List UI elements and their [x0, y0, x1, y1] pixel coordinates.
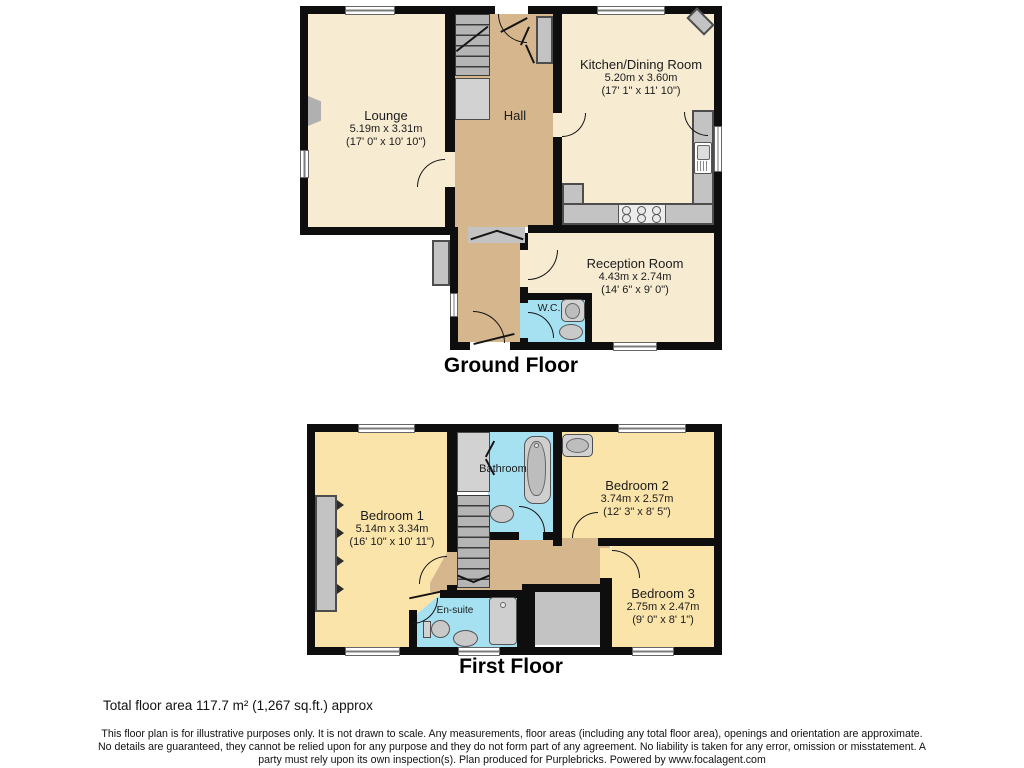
wall	[520, 338, 528, 344]
ensuite-label: En-suite	[426, 605, 484, 616]
total-floor-area: Total floor area 117.7 m² (1,267 sq.ft.)…	[103, 698, 523, 713]
kitchen-label: Kitchen/Dining Room 5.20m x 3.60m (17' 1…	[571, 57, 711, 98]
front-door-opening	[495, 6, 528, 14]
wall	[445, 14, 455, 152]
wall	[528, 225, 722, 233]
bedroom2-sink-fixture	[562, 434, 593, 457]
bathroom-sink-fixture	[490, 505, 514, 523]
kitchen-counter	[562, 183, 584, 205]
room-dim-metric: 5.14m x 3.34m	[332, 523, 452, 536]
window	[613, 342, 657, 351]
room-name: Bathroom	[467, 464, 539, 475]
wc-label: W.C.	[533, 303, 565, 314]
room-dim-imperial: (12' 3" x 8' 5")	[577, 506, 697, 519]
room-name: Kitchen/Dining Room	[571, 57, 711, 72]
disclaimer-text: This floor plan is for illustrative purp…	[94, 728, 930, 767]
hall-cupboard	[536, 16, 553, 64]
bedroom1-label: Bedroom 1 5.14m x 3.34m (16' 10" x 10' 1…	[332, 508, 452, 549]
room-dim-metric: 3.74m x 2.57m	[577, 493, 697, 506]
wc-door-opening	[520, 303, 528, 338]
window	[632, 647, 674, 656]
bedroom3-label: Bedroom 3 2.75m x 2.47m (9' 0" x 8' 1")	[603, 586, 723, 627]
wardrobe-door-mark	[337, 584, 344, 594]
shower-fixture	[489, 597, 517, 645]
room-name: Bedroom 1	[332, 508, 452, 523]
bedroom3-door-opening	[600, 548, 612, 578]
room-dim-metric: 5.19m x 3.31m	[326, 123, 446, 136]
room-name: Bedroom 2	[577, 478, 697, 493]
room-dim-metric: 5.20m x 3.60m	[571, 72, 711, 85]
room-name: Lounge	[326, 108, 446, 123]
wall	[450, 227, 458, 293]
stairs-first	[457, 495, 490, 588]
ensuite-sink-fixture	[453, 630, 478, 647]
first-floor-title: First Floor	[411, 655, 611, 679]
wall	[598, 538, 714, 546]
wc-sink-fixture	[559, 324, 584, 341]
wall	[445, 187, 455, 227]
wall	[522, 584, 608, 592]
bathroom-label: Bathroom	[467, 464, 539, 475]
hall-label: Hall	[485, 108, 545, 123]
wall	[450, 317, 458, 342]
bathroom-door-opening	[519, 532, 543, 540]
wall	[585, 293, 592, 342]
stairs-ground	[455, 14, 490, 76]
window	[597, 6, 665, 15]
window	[345, 6, 395, 15]
room-dim-imperial: (9' 0" x 8' 1")	[603, 614, 723, 627]
wall	[553, 6, 562, 113]
wall	[307, 424, 315, 655]
floorplan-page: Lounge 5.19m x 3.31m (17' 0" x 10' 10") …	[0, 0, 1024, 768]
room-name: W.C.	[533, 303, 565, 314]
lounge-door-opening	[445, 152, 455, 187]
bedroom2-label: Bedroom 2 3.74m x 2.57m (12' 3" x 8' 5")	[577, 478, 697, 519]
kitchen-sink-fixture	[694, 142, 712, 174]
room-dim-metric: 4.43m x 2.74m	[575, 271, 695, 284]
landing-closet	[457, 432, 490, 492]
ensuite-toilet-bowl	[431, 620, 450, 638]
ground-floor-title: Ground Floor	[411, 354, 611, 378]
wardrobe-door-mark	[337, 556, 344, 566]
wall	[300, 6, 308, 235]
room-name: Reception Room	[575, 256, 695, 271]
reception-label: Reception Room 4.43m x 2.74m (14' 6" x 9…	[575, 256, 695, 297]
kitchen-door-opening	[553, 113, 562, 137]
room-dim-imperial: (14' 6" x 9' 0")	[575, 284, 695, 297]
wall	[553, 530, 562, 546]
wall	[517, 592, 535, 647]
storage-cupboard	[535, 592, 600, 645]
room-name: Hall	[485, 108, 545, 123]
bedroom2-door-opening	[562, 538, 598, 546]
room-name: Bedroom 3	[603, 586, 723, 601]
room-dim-imperial: (16' 10" x 10' 11")	[332, 536, 452, 549]
window	[300, 150, 309, 178]
ensuite-toilet-tank	[423, 621, 431, 638]
external-store	[432, 240, 450, 286]
lounge-label: Lounge 5.19m x 3.31m (17' 0" x 10' 10")	[326, 108, 446, 149]
window	[450, 293, 458, 317]
window	[714, 126, 722, 172]
room-dim-metric: 2.75m x 2.47m	[603, 601, 723, 614]
wall	[553, 432, 562, 532]
window	[358, 424, 415, 433]
reception-door-opening	[520, 250, 528, 287]
wall	[520, 287, 528, 303]
window	[618, 424, 686, 433]
room-name: En-suite	[426, 605, 484, 616]
room-dim-imperial: (17' 1" x 11' 10")	[571, 85, 711, 98]
bedroom1-door-opening	[447, 552, 457, 585]
wall	[300, 227, 450, 235]
wall	[553, 137, 562, 227]
window	[345, 647, 400, 656]
hob-fixture	[618, 204, 666, 224]
room-dim-imperial: (17' 0" x 10' 10")	[326, 136, 446, 149]
wall	[714, 6, 722, 350]
